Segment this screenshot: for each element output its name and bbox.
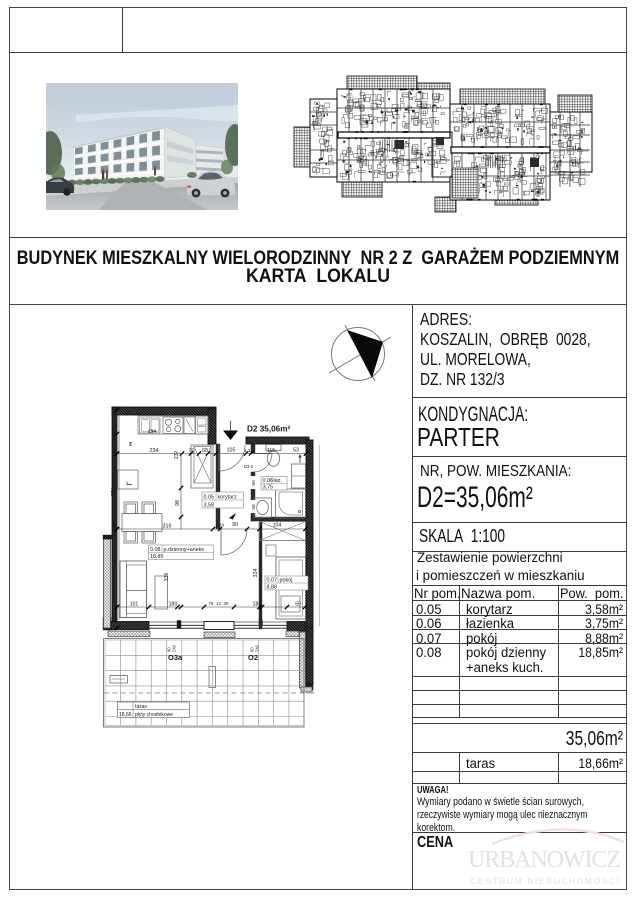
svg-text:234: 234 <box>150 448 159 454</box>
svg-text:336: 336 <box>164 573 170 582</box>
svg-text:0.07: 0.07 <box>267 578 278 584</box>
svg-text:324: 324 <box>253 569 259 578</box>
svg-text:1,12: 1,12 <box>244 448 253 453</box>
svg-text:115: 115 <box>267 448 275 454</box>
svg-text:8,88: 8,88 <box>267 585 278 591</box>
svg-text:łaz.: łaz. <box>274 478 282 484</box>
svg-text:18,85: 18,85 <box>150 554 164 560</box>
svg-text:90: 90 <box>232 522 238 528</box>
svg-text:105: 105 <box>227 448 236 454</box>
svg-text:18,66: 18,66 <box>119 712 132 718</box>
svg-text:232: 232 <box>174 451 180 460</box>
svg-text:p.dzienny+aneks: p.dzienny+aneks <box>164 547 205 553</box>
svg-text:98: 98 <box>175 500 181 506</box>
svg-text:z: z <box>129 442 132 448</box>
svg-text:124: 124 <box>216 523 224 529</box>
svg-text:CENTRUM NIERUCHOMOŚCI: CENTRUM NIERUCHOMOŚCI <box>470 875 620 886</box>
svg-text:taras: taras <box>135 704 147 710</box>
svg-text:234: 234 <box>148 429 156 435</box>
svg-text:O3a: O3a <box>168 653 183 662</box>
svg-text:101: 101 <box>130 602 139 608</box>
svg-text:274: 274 <box>111 488 117 497</box>
svg-text:180: 180 <box>253 602 262 608</box>
svg-text:75: 75 <box>209 601 214 606</box>
svg-text:O2: O2 <box>248 653 258 662</box>
svg-text:3,58: 3,58 <box>204 503 215 509</box>
svg-text:płyty chodnikowe: płyty chodnikowe <box>135 712 173 718</box>
svg-text:D3-2: D3-2 <box>244 464 254 469</box>
svg-text:240: 240 <box>255 644 260 652</box>
svg-text:104: 104 <box>273 523 282 529</box>
svg-text:180: 180 <box>169 602 178 608</box>
svg-text:39: 39 <box>224 601 229 606</box>
svg-text:0.06: 0.06 <box>263 478 274 484</box>
svg-text:0.08: 0.08 <box>150 547 161 553</box>
svg-text:90: 90 <box>251 480 257 486</box>
svg-text:240: 240 <box>172 644 177 652</box>
svg-text:D2 35,06m²: D2 35,06m² <box>247 425 291 434</box>
svg-text:316: 316 <box>163 524 172 530</box>
svg-text:72: 72 <box>188 448 194 453</box>
svg-text:58: 58 <box>251 504 257 510</box>
svg-text:3,75: 3,75 <box>263 485 274 491</box>
svg-text:68: 68 <box>202 448 208 454</box>
svg-text:korytarz: korytarz <box>218 495 237 501</box>
svg-text:URBANOWICZ: URBANOWICZ <box>468 847 622 873</box>
svg-text:59: 59 <box>295 602 301 608</box>
svg-text:12: 12 <box>216 601 221 606</box>
svg-text:-0,02: -0,02 <box>306 691 315 695</box>
svg-text:53: 53 <box>293 448 299 454</box>
svg-text:0.05: 0.05 <box>204 495 215 501</box>
svg-text:pokój: pokój <box>280 578 293 584</box>
